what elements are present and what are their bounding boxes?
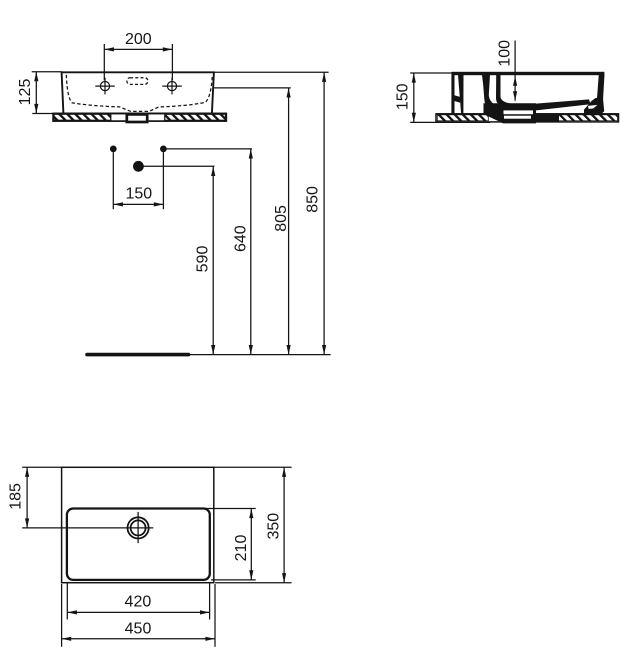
- svg-text:200: 200: [125, 31, 152, 48]
- svg-text:125: 125: [17, 79, 34, 106]
- svg-text:185: 185: [7, 483, 24, 510]
- svg-text:150: 150: [125, 186, 152, 203]
- svg-text:640: 640: [232, 225, 249, 252]
- svg-text:100: 100: [496, 40, 513, 67]
- svg-text:805: 805: [273, 205, 290, 232]
- svg-text:210: 210: [233, 535, 250, 562]
- svg-text:450: 450: [125, 621, 152, 638]
- svg-text:850: 850: [305, 186, 322, 213]
- svg-text:420: 420: [125, 593, 152, 610]
- svg-text:350: 350: [266, 513, 283, 540]
- svg-text:590: 590: [195, 246, 212, 273]
- svg-text:150: 150: [395, 83, 412, 110]
